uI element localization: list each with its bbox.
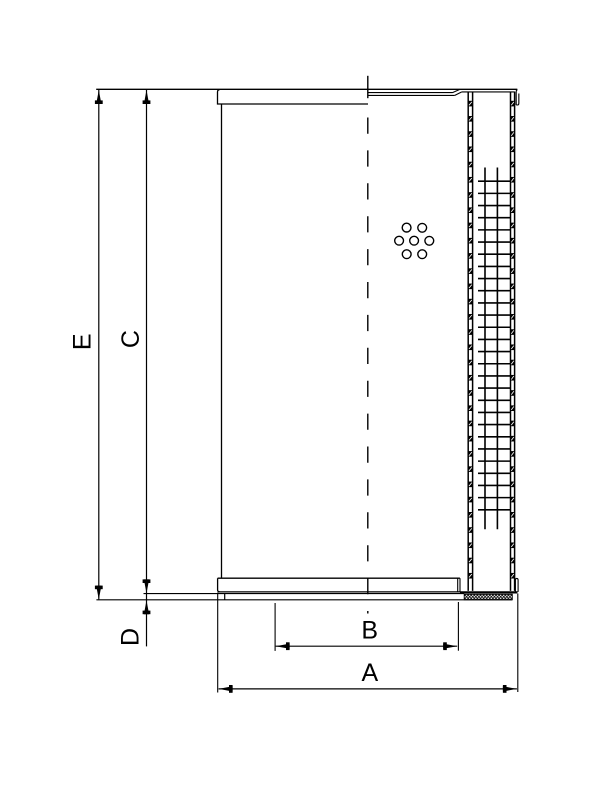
svg-text:C: C [117, 330, 145, 348]
svg-text:E: E [69, 333, 97, 350]
svg-text:A: A [362, 659, 379, 687]
svg-text:B: B [361, 617, 378, 645]
svg-text:D: D [117, 628, 145, 646]
